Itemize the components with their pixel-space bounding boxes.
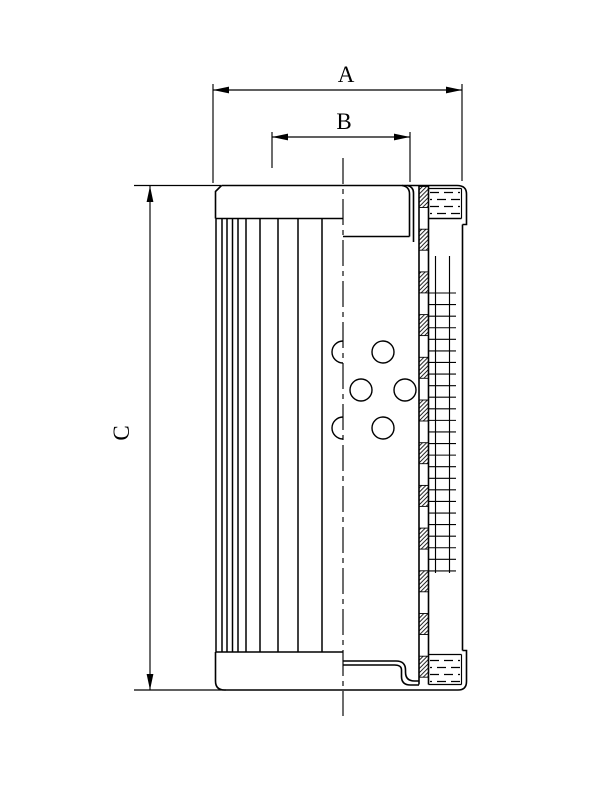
bypass-hole-pattern: [332, 341, 416, 439]
bottom-adhesive-dashes: [430, 661, 460, 682]
media-hatch-block: [419, 272, 429, 293]
top-cap-left-edge: [216, 186, 222, 219]
media-hatch-block: [419, 443, 429, 464]
bottom-cap-inner-step-upper: [343, 661, 419, 681]
media-hatch-blocks: [419, 187, 429, 678]
arrowhead-down-icon: [147, 674, 154, 690]
media-hatch-block: [419, 485, 429, 506]
top-adhesive-dashes: [430, 193, 460, 214]
dimension-b-label: B: [336, 109, 351, 134]
media-hatch-block: [419, 528, 429, 549]
dimension-c: C: [109, 186, 226, 691]
bypass-hole-half: [332, 341, 343, 363]
core-mesh-rungs: [429, 293, 456, 571]
bypass-hole: [394, 379, 416, 401]
dimension-b: B: [272, 109, 410, 182]
media-hatch-block: [419, 400, 429, 421]
media-hatch-block: [419, 315, 429, 336]
media-hatch-block: [419, 614, 429, 635]
media-hatch-block: [419, 187, 429, 208]
media-hatch-block: [419, 571, 429, 592]
arrowhead-right-icon: [394, 134, 410, 141]
bypass-hole: [372, 341, 394, 363]
bypass-hole-half: [332, 417, 343, 439]
top-cap-inner-bore: [402, 186, 410, 237]
filter-media-section: [419, 186, 429, 685]
bypass-hole: [350, 379, 372, 401]
support-core: [429, 256, 456, 573]
arrowhead-right-icon: [446, 87, 462, 94]
drawing-page: A B C: [0, 0, 612, 792]
arrowhead-up-icon: [147, 186, 154, 202]
dimension-a-label: A: [338, 62, 355, 87]
media-hatch-block: [419, 229, 429, 250]
top-cap-shell-left-edge: [408, 186, 414, 243]
media-hatch-block: [419, 656, 429, 677]
arrowhead-left-icon: [213, 87, 229, 94]
filter-element-technical-drawing: A B C: [0, 0, 612, 792]
pleated-filter-media: [216, 219, 322, 653]
arrowhead-left-icon: [272, 134, 288, 141]
bottom-cap-inner-step-lower: [343, 665, 419, 685]
media-hatch-block: [419, 357, 429, 378]
bypass-hole: [372, 417, 394, 439]
dimension-c-label: C: [109, 425, 134, 440]
